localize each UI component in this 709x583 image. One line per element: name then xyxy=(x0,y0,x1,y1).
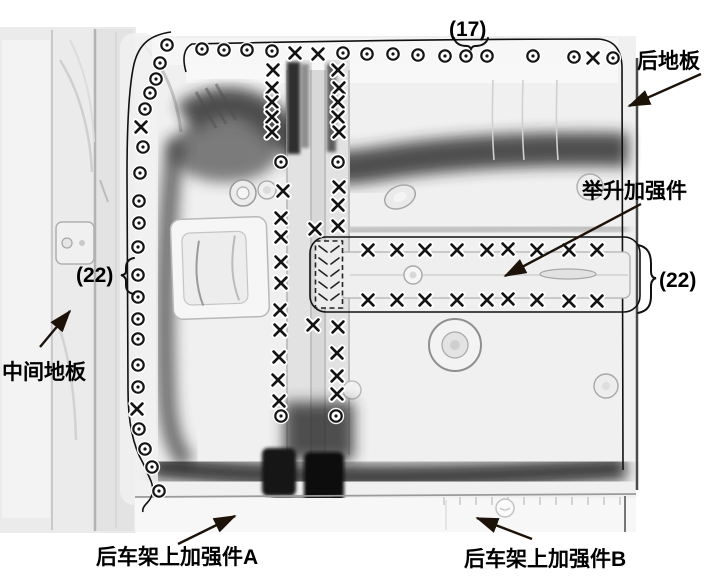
spot-weld-x-mark xyxy=(392,295,403,306)
spot-weld-x-mark xyxy=(334,182,345,193)
spot-weld-x-mark xyxy=(564,245,575,256)
spot-weld-x-mark xyxy=(452,245,463,256)
spot-weld-circle-mark xyxy=(144,459,160,475)
spot-weld-x-mark xyxy=(332,371,343,382)
spot-weld-x-mark xyxy=(310,224,321,235)
spot-weld-circle-mark xyxy=(437,48,453,64)
spot-weld-circle-mark xyxy=(479,48,495,64)
spot-weld-x-mark xyxy=(334,127,345,138)
spot-weld-x-mark xyxy=(136,122,147,133)
spot-weld-x-mark xyxy=(564,296,575,307)
spot-weld-x-mark xyxy=(278,186,289,197)
spot-weld-circle-mark xyxy=(130,289,146,305)
spot-weld-circle-mark xyxy=(328,408,344,424)
middle-floor-label: 中间地板 xyxy=(2,360,87,384)
spot-weld-x-mark xyxy=(332,389,343,400)
count-left-label: (22) xyxy=(76,264,113,287)
spot-weld-x-mark xyxy=(452,295,463,306)
spot-weld-x-mark xyxy=(274,396,285,407)
spot-weld-x-mark xyxy=(267,112,278,123)
spot-weld-x-mark xyxy=(503,244,514,255)
mig-weld-hatch-box xyxy=(316,241,343,308)
spot-weld-circle-mark xyxy=(130,267,146,283)
rear-frame-a-label: 后车架上加强件A xyxy=(96,545,258,569)
spot-weld-x-mark xyxy=(267,127,278,138)
spot-weld-circle-mark xyxy=(566,49,582,65)
spot-weld-x-mark xyxy=(333,322,344,333)
spot-weld-x-mark xyxy=(332,348,343,359)
spot-weld-circle-mark xyxy=(148,71,164,87)
spot-weld-x-mark xyxy=(592,296,603,307)
spot-weld-circle-mark xyxy=(159,37,175,53)
spot-weld-x-mark xyxy=(482,295,493,306)
spot-weld-x-mark xyxy=(592,245,603,256)
spot-weld-x-mark xyxy=(503,294,514,305)
spot-weld-x-mark xyxy=(290,48,301,59)
spot-weld-circle-mark xyxy=(194,41,210,57)
spot-weld-circle-mark xyxy=(359,46,375,62)
spot-weld-x-mark xyxy=(333,221,344,232)
spot-weld-x-mark xyxy=(363,245,374,256)
spot-weld-x-mark xyxy=(420,245,431,256)
spot-weld-circle-mark xyxy=(130,357,146,373)
spot-weld-x-mark xyxy=(532,295,543,306)
spot-weld-circle-mark xyxy=(137,441,153,457)
spot-weld-circle-mark xyxy=(151,483,167,499)
spot-weld-circle-mark xyxy=(130,311,146,327)
spot-weld-circle-mark xyxy=(131,215,147,231)
spot-weld-circle-mark xyxy=(135,139,151,155)
count-right-label: (22) xyxy=(659,269,696,292)
spot-weld-x-mark xyxy=(275,305,286,316)
spot-weld-circle-mark xyxy=(130,379,146,395)
count-top-label: (17) xyxy=(449,18,486,41)
spot-weld-x-mark xyxy=(532,245,543,256)
spot-weld-circle-mark xyxy=(130,239,146,255)
spot-weld-circle-mark xyxy=(525,48,541,64)
spot-weld-x-mark xyxy=(132,404,143,415)
spot-weld-circle-mark xyxy=(137,101,153,117)
diagram-stage: (17) 后地板 举升加强件 (22) (22) 中间地板 后车架上加强件A 后… xyxy=(0,0,709,583)
spot-weld-circle-mark xyxy=(605,50,621,66)
spot-weld-x-mark xyxy=(275,325,286,336)
lift-reinforcement-label: 举升加强件 xyxy=(581,179,687,203)
spot-weld-circle-mark xyxy=(264,43,280,59)
spot-weld-x-mark xyxy=(482,245,493,256)
spot-weld-x-mark xyxy=(392,245,403,256)
spot-weld-x-mark xyxy=(333,112,344,123)
spot-weld-circle-mark xyxy=(216,42,232,58)
floor-welding-diagram: (17) 后地板 举升加强件 (22) (22) 中间地板 后车架上加强件A 后… xyxy=(0,0,709,583)
spot-weld-x-mark xyxy=(420,295,431,306)
spot-weld-circle-mark xyxy=(131,193,147,209)
spot-weld-x-mark xyxy=(308,320,319,331)
spot-weld-x-mark xyxy=(267,83,278,94)
spot-weld-x-mark xyxy=(334,83,345,94)
spot-weld-circle-mark xyxy=(152,55,168,71)
spot-weld-circle-mark xyxy=(335,45,351,61)
rear-floor-label: 后地板 xyxy=(637,49,701,73)
spot-weld-x-mark xyxy=(268,65,279,76)
spot-weld-circle-mark xyxy=(273,408,289,424)
spot-weld-x-mark xyxy=(267,97,278,108)
spot-weld-x-mark xyxy=(274,352,285,363)
spot-weld-x-mark xyxy=(276,257,287,268)
spot-weld-x-mark xyxy=(333,97,344,108)
spot-weld-x-mark xyxy=(588,53,599,64)
rear-frame-b-label: 后车架上加强件B xyxy=(464,547,626,571)
spot-weld-circle-mark xyxy=(410,47,426,63)
spot-weld-x-mark xyxy=(276,232,287,243)
spot-weld-circle-mark xyxy=(385,46,401,62)
spot-weld-circle-mark xyxy=(239,42,255,58)
spot-weld-x-mark xyxy=(276,278,287,289)
spot-weld-x-mark xyxy=(276,213,287,224)
spot-weld-circle-mark xyxy=(132,165,148,181)
spot-weld-circle-mark xyxy=(131,421,147,437)
spot-weld-x-mark xyxy=(333,200,344,211)
spot-weld-x-mark xyxy=(273,375,284,386)
spot-weld-circle-mark xyxy=(142,85,158,101)
spot-weld-x-mark xyxy=(333,65,344,76)
spot-weld-circle-mark xyxy=(130,331,146,347)
spot-weld-circle-mark xyxy=(458,48,474,64)
spot-weld-x-mark xyxy=(363,295,374,306)
spot-weld-circle-mark xyxy=(330,154,346,170)
spot-weld-circle-mark xyxy=(273,154,289,170)
spot-weld-x-mark xyxy=(313,49,324,60)
